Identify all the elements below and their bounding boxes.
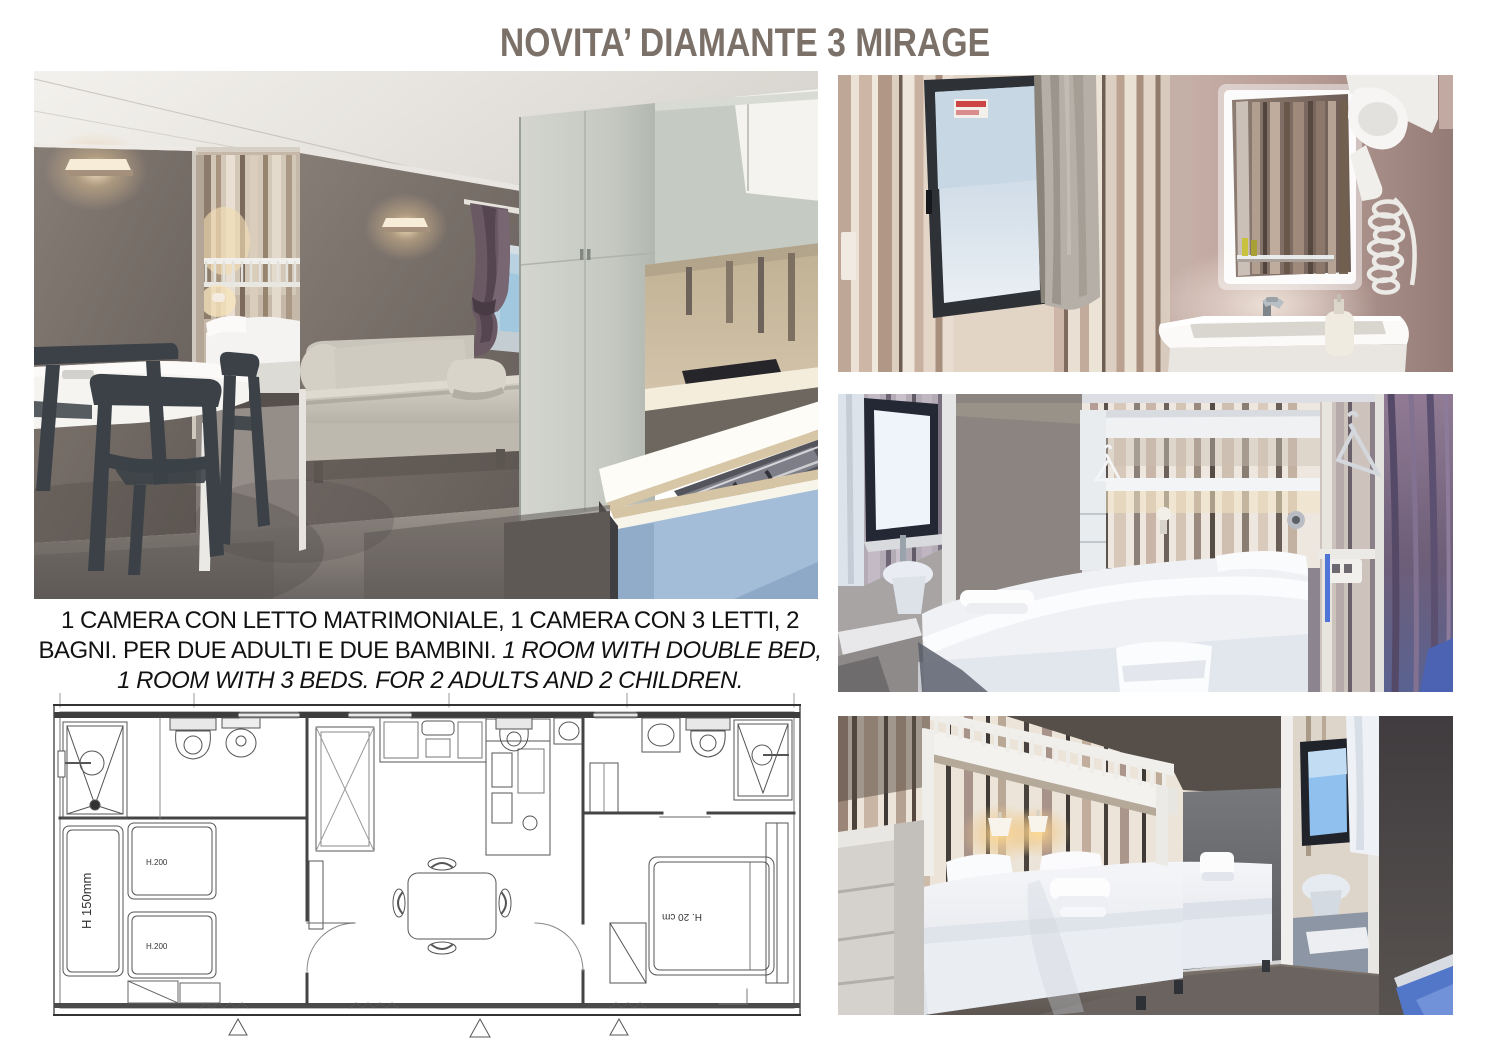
svg-text:H.200: H.200: [146, 858, 168, 867]
svg-text:H 150mm: H 150mm: [79, 873, 94, 929]
svg-text:H. 20 cm: H. 20 cm: [662, 911, 702, 922]
svg-text:H.200: H.200: [146, 942, 168, 951]
